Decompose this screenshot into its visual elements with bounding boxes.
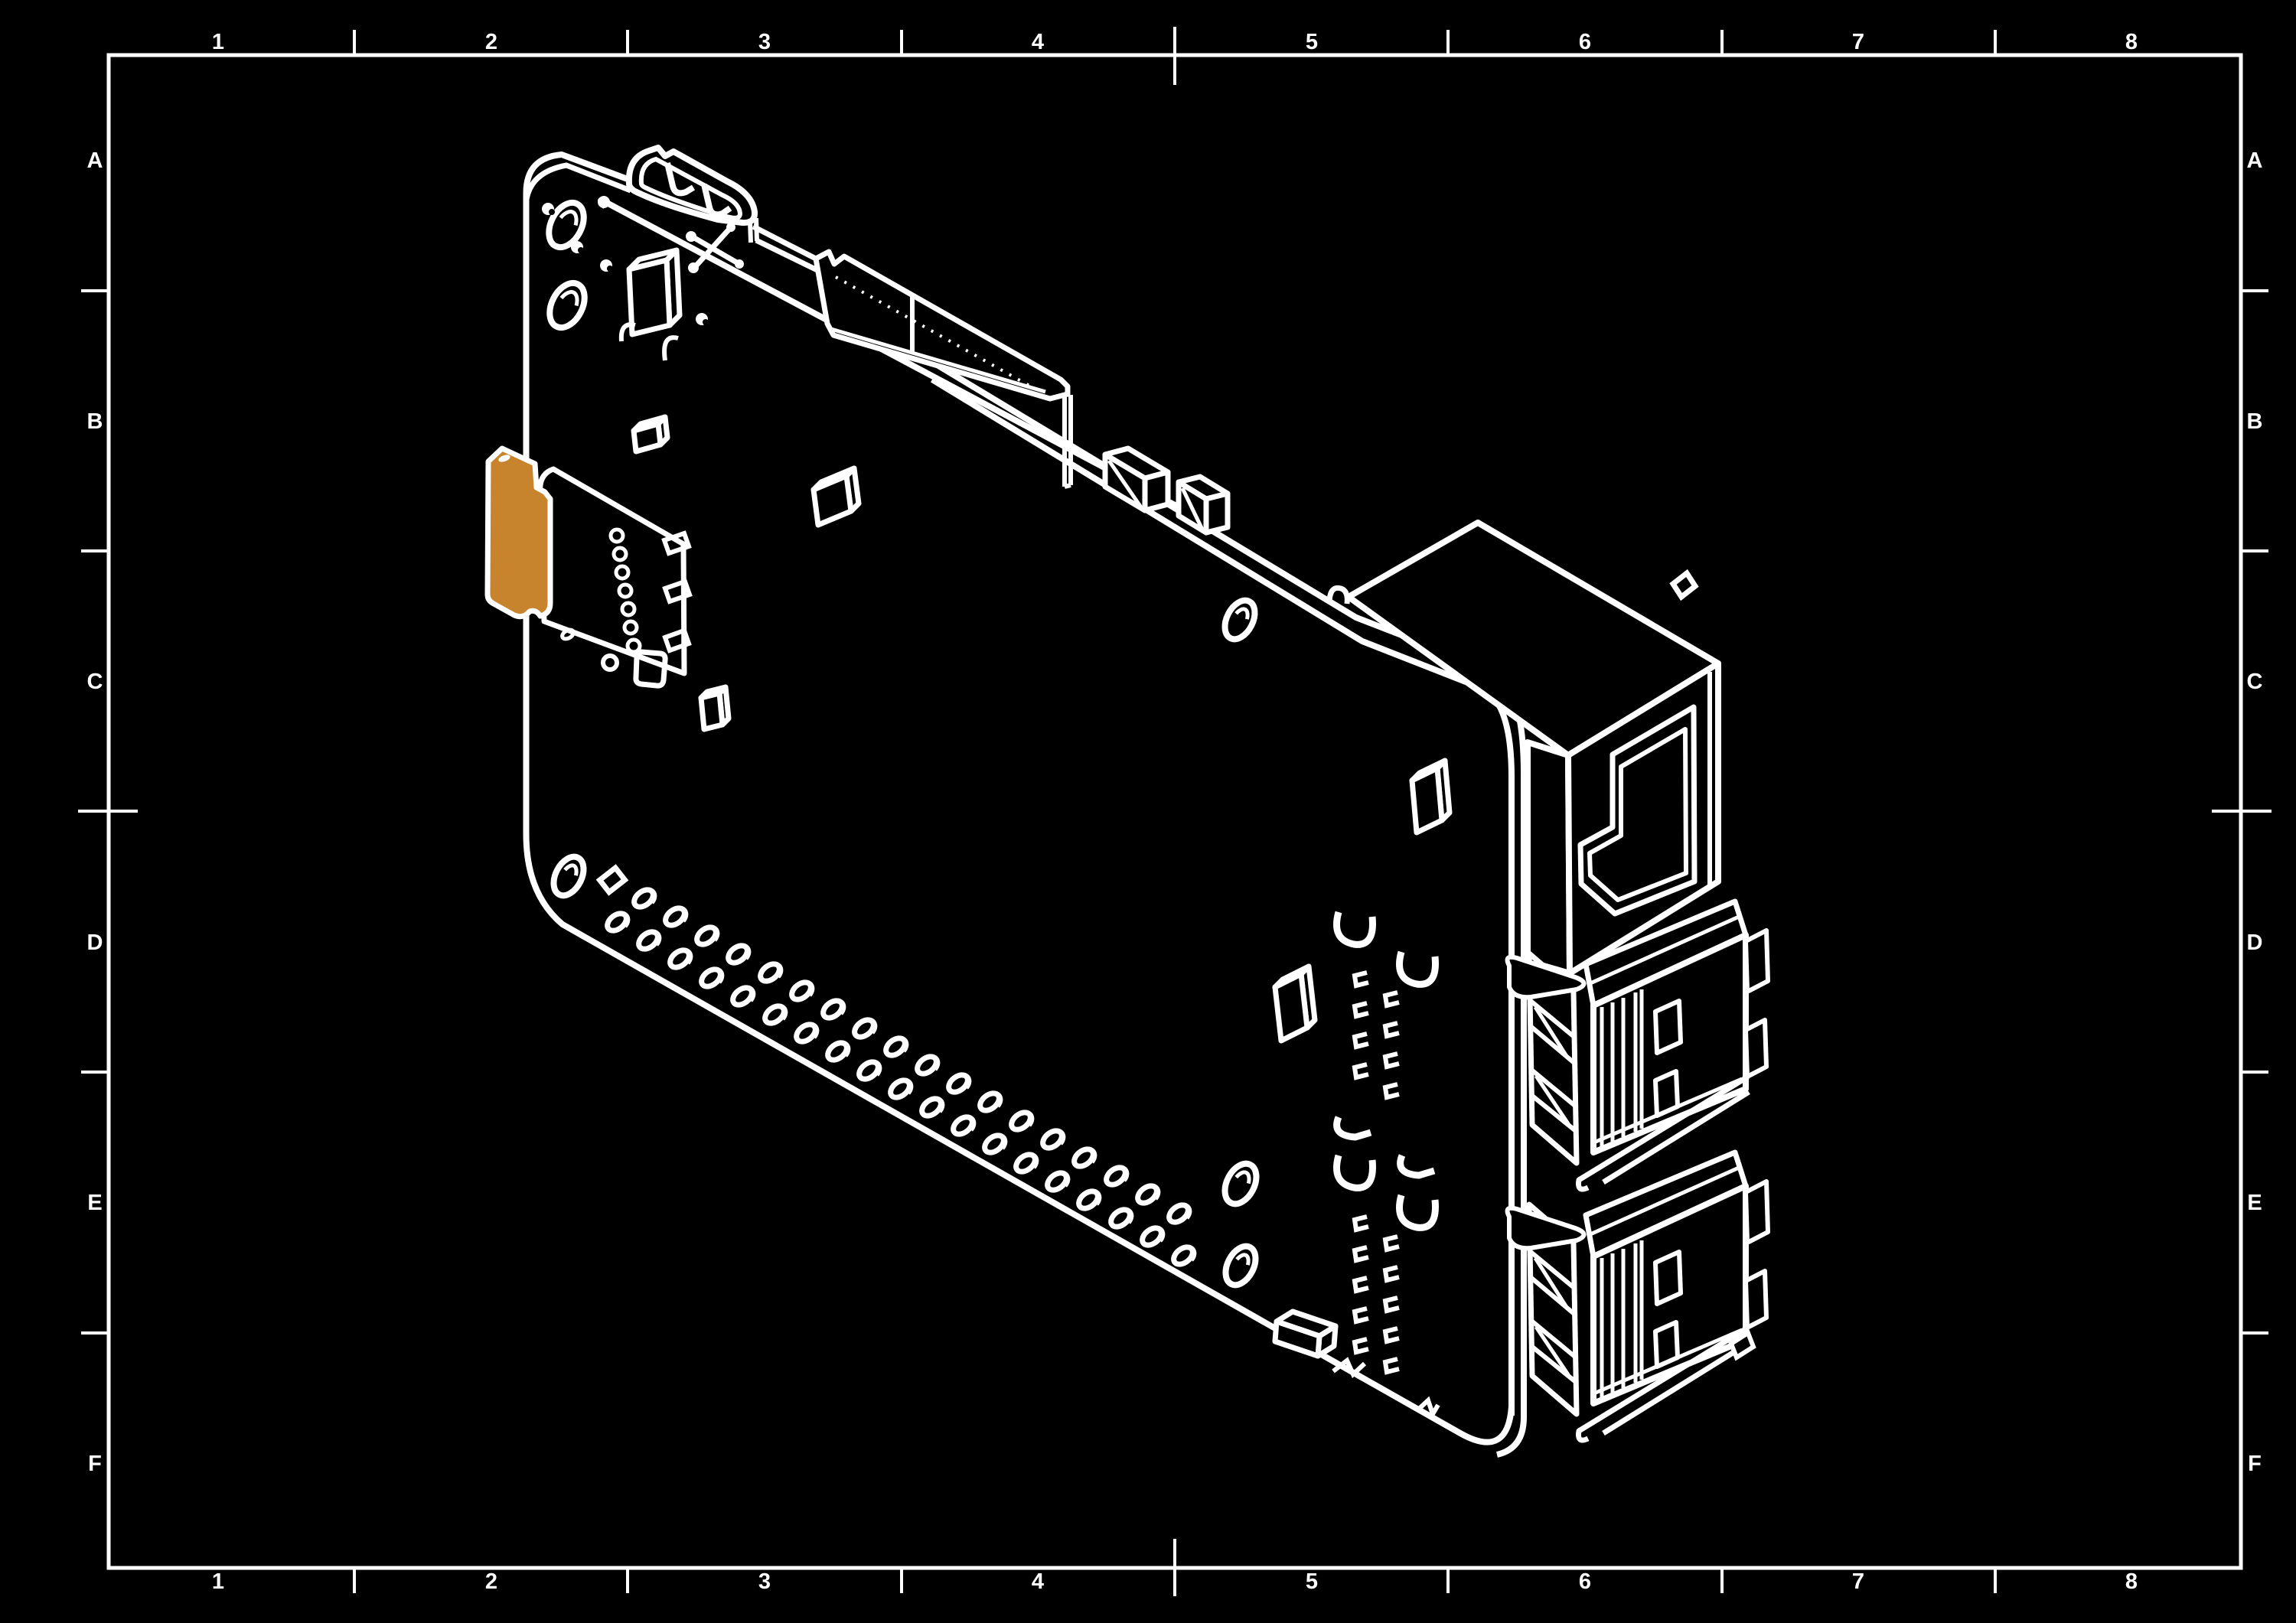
svg-text:4: 4	[1032, 1569, 1044, 1594]
svg-text:A: A	[2247, 148, 2263, 173]
svg-text:3: 3	[758, 1569, 771, 1594]
svg-text:6: 6	[1579, 30, 1591, 54]
svg-text:6: 6	[1579, 1569, 1591, 1594]
svg-text:7: 7	[1852, 30, 1864, 54]
svg-text:A: A	[87, 148, 103, 173]
svg-text:8: 8	[2125, 1569, 2138, 1594]
svg-text:C: C	[87, 670, 103, 694]
svg-text:D: D	[2247, 930, 2263, 955]
svg-text:F: F	[88, 1452, 102, 1476]
svg-text:5: 5	[1306, 30, 1318, 54]
svg-text:1: 1	[212, 1569, 224, 1594]
svg-text:E: E	[87, 1191, 102, 1215]
svg-text:E: E	[2247, 1191, 2262, 1215]
svg-text:F: F	[2248, 1452, 2262, 1476]
svg-text:B: B	[87, 409, 103, 434]
svg-text:D: D	[87, 930, 103, 955]
svg-text:2: 2	[485, 30, 497, 54]
svg-text:7: 7	[1852, 1569, 1864, 1594]
svg-text:5: 5	[1306, 1569, 1318, 1594]
svg-text:4: 4	[1032, 30, 1044, 54]
svg-text:8: 8	[2125, 30, 2138, 54]
svg-text:B: B	[2247, 409, 2263, 434]
svg-text:3: 3	[758, 30, 771, 54]
svg-text:C: C	[2247, 670, 2263, 694]
svg-text:2: 2	[485, 1569, 497, 1594]
svg-text:1: 1	[212, 30, 224, 54]
